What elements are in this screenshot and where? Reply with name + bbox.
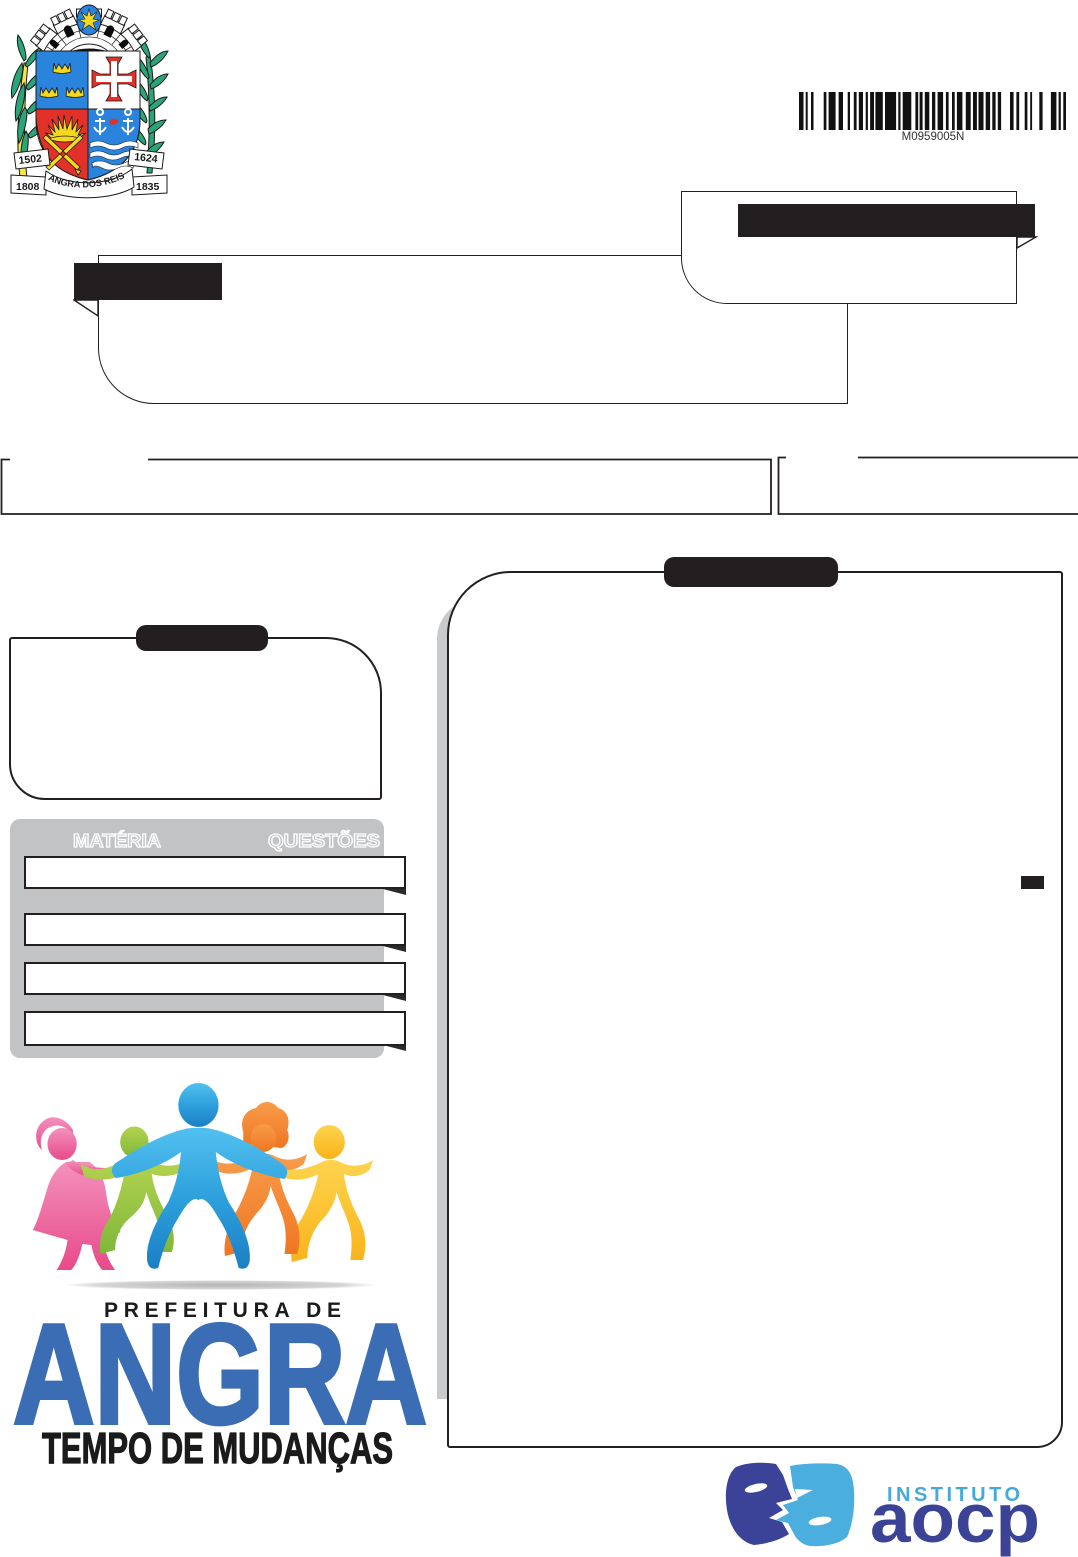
svg-text:QUESTÕES: QUESTÕES	[268, 830, 380, 851]
svg-text:1502: 1502	[18, 153, 43, 167]
svg-text:aocp: aocp	[870, 1485, 1040, 1557]
svg-text:TEMPO DE MUDANÇAS: TEMPO DE MUDANÇAS	[42, 1425, 393, 1473]
svg-text:MATÉRIA: MATÉRIA	[73, 830, 161, 851]
svg-text:M0959005N: M0959005N	[902, 131, 965, 143]
svg-text:1624: 1624	[134, 151, 159, 165]
svg-text:ANGRA: ANGRA	[13, 1300, 427, 1430]
svg-text:1835: 1835	[136, 181, 160, 193]
svg-text:1808: 1808	[16, 181, 40, 193]
